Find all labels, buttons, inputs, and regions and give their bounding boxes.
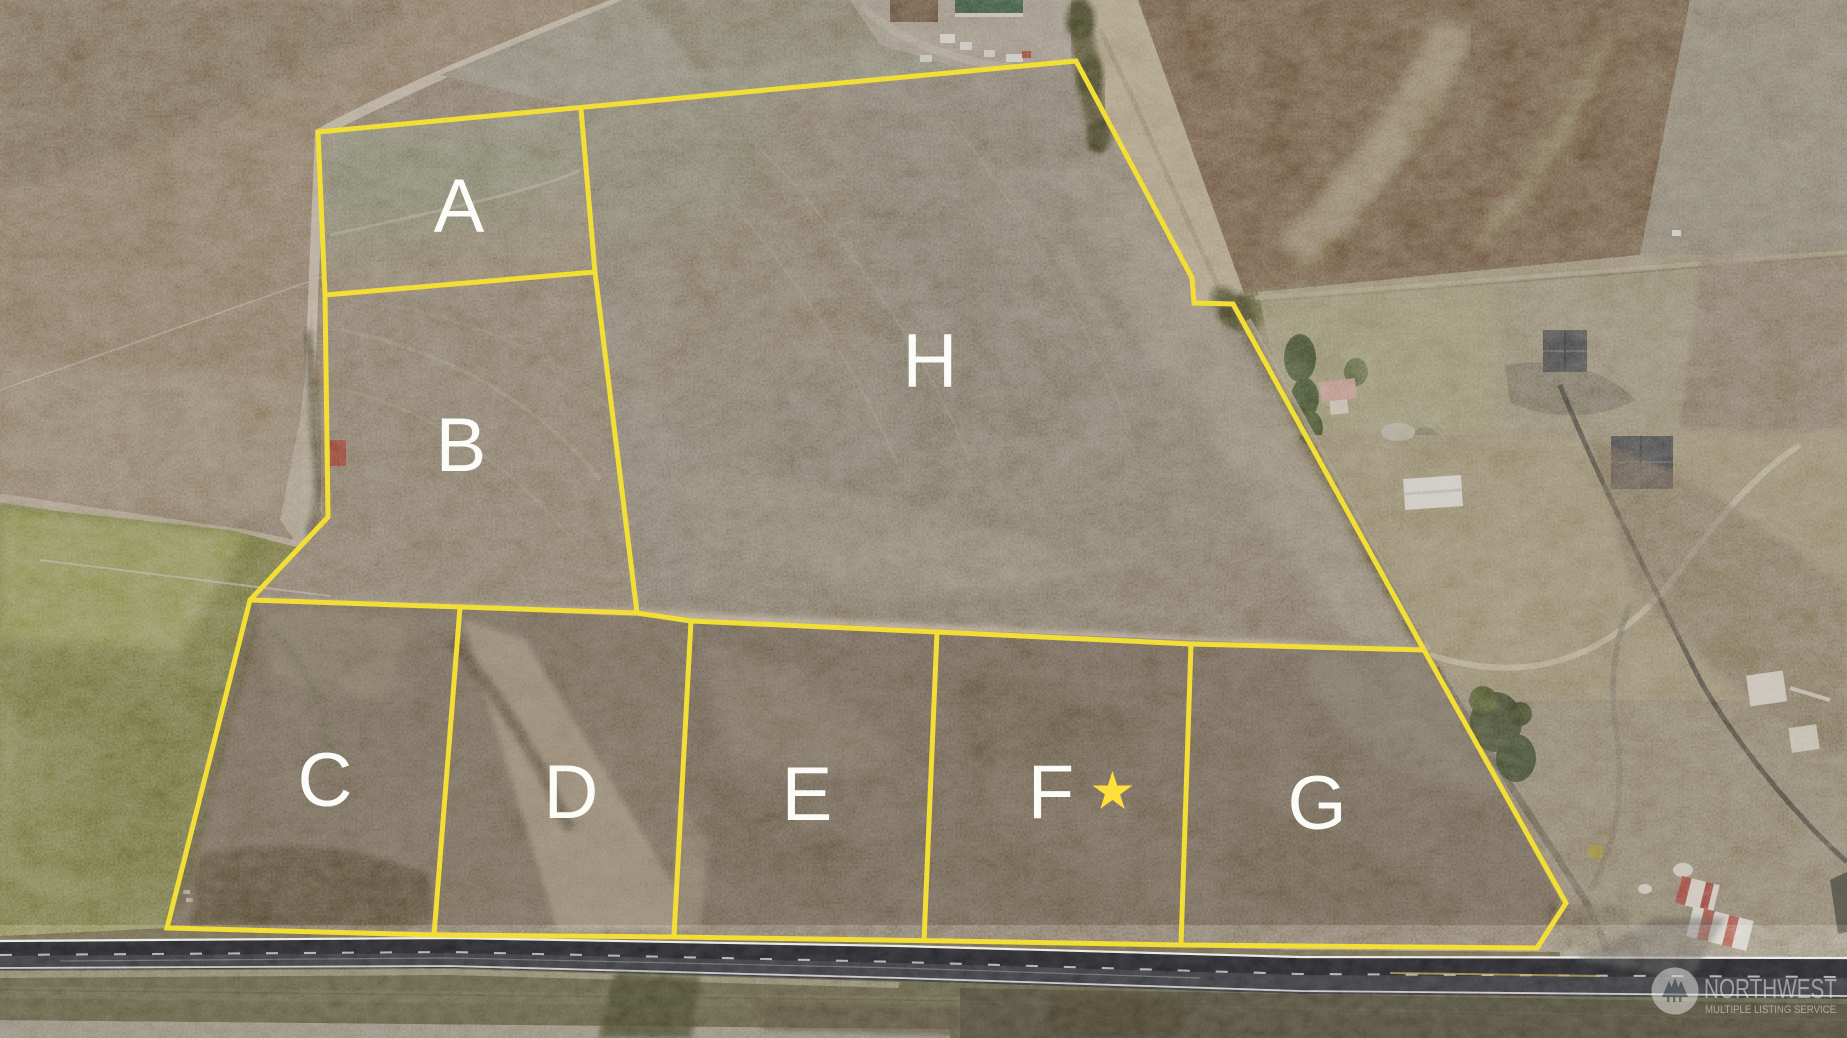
svg-text:A: A [434, 164, 485, 249]
svg-text:F: F [1028, 750, 1074, 835]
svg-text:MULTIPLE LISTING SERVICE: MULTIPLE LISTING SERVICE [1705, 1004, 1836, 1016]
svg-text:G: G [1287, 761, 1346, 846]
svg-text:B: B [436, 403, 487, 488]
svg-text:E: E [782, 752, 833, 837]
svg-text:D: D [544, 750, 599, 835]
svg-text:H: H [903, 319, 958, 404]
svg-text:C: C [298, 738, 353, 823]
svg-text:NORTHWEST: NORTHWEST [1704, 973, 1837, 1004]
